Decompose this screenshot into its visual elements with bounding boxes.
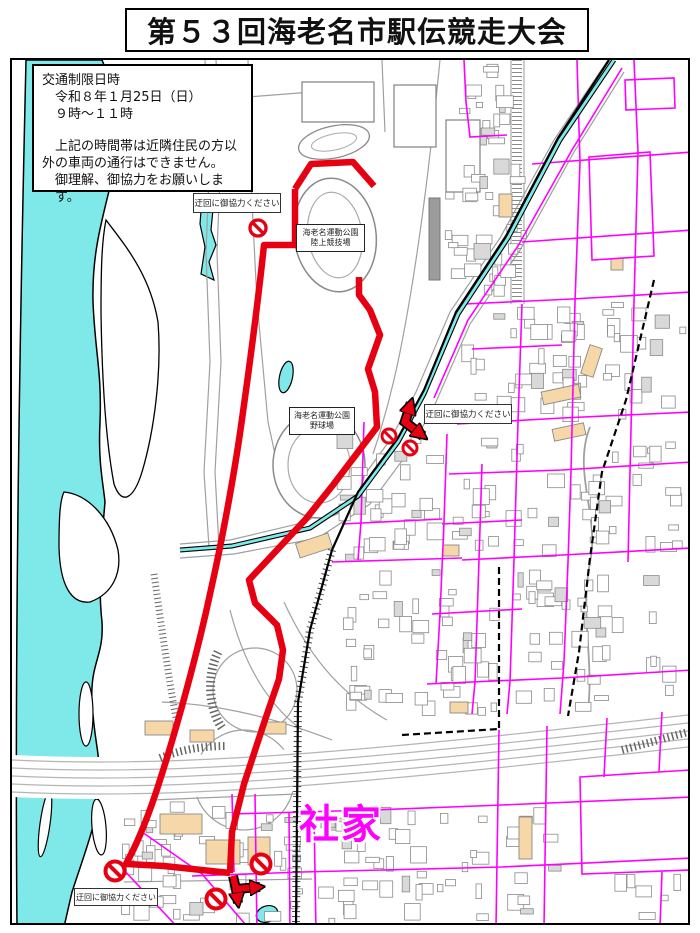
building xyxy=(442,617,452,626)
building xyxy=(464,479,469,489)
building xyxy=(608,325,615,337)
detour-label-south: 迂回に御協力ください xyxy=(74,888,158,906)
no-entry-icon xyxy=(207,890,226,909)
building xyxy=(489,537,499,547)
park-pond xyxy=(276,360,295,394)
building xyxy=(599,501,611,513)
building xyxy=(170,802,184,812)
building xyxy=(472,634,486,648)
building xyxy=(472,505,485,518)
river-island xyxy=(90,798,109,855)
no-entry-icon xyxy=(250,220,266,236)
building xyxy=(553,355,566,366)
building xyxy=(518,573,523,587)
building xyxy=(367,490,383,503)
building xyxy=(598,575,609,592)
building xyxy=(392,493,405,507)
building xyxy=(494,159,509,174)
building xyxy=(394,602,402,617)
detour-label-north: 迂回に御協力ください xyxy=(193,193,281,213)
building xyxy=(596,531,609,544)
building xyxy=(449,590,457,595)
building xyxy=(563,407,578,422)
building xyxy=(413,621,429,633)
building xyxy=(544,688,554,701)
building xyxy=(466,193,478,201)
building xyxy=(489,138,505,144)
municipal-boundary xyxy=(402,280,654,735)
building xyxy=(432,570,440,576)
building xyxy=(655,315,669,328)
building xyxy=(548,474,565,488)
building xyxy=(649,612,656,624)
building xyxy=(489,663,497,680)
notice-heading: 交通制限日時 xyxy=(42,72,245,89)
building xyxy=(529,652,541,662)
building xyxy=(446,192,454,199)
building xyxy=(386,857,393,872)
building xyxy=(515,873,527,884)
building xyxy=(454,248,467,256)
tan-building xyxy=(541,384,581,405)
building xyxy=(491,703,497,712)
building xyxy=(532,373,544,388)
building xyxy=(471,851,477,858)
building xyxy=(549,517,559,526)
building xyxy=(595,696,609,701)
building xyxy=(486,192,493,199)
building xyxy=(530,634,540,645)
building xyxy=(350,692,361,699)
building xyxy=(509,383,515,392)
building xyxy=(477,914,489,921)
building xyxy=(427,455,444,463)
building xyxy=(351,468,367,476)
building xyxy=(518,307,535,319)
stadium-stands xyxy=(429,198,440,280)
tan-building xyxy=(581,345,603,378)
building xyxy=(344,878,357,886)
building xyxy=(474,244,491,260)
building xyxy=(329,918,335,924)
building xyxy=(516,691,531,703)
building xyxy=(644,576,660,586)
building xyxy=(267,815,274,822)
building xyxy=(576,703,592,712)
building xyxy=(445,231,452,240)
building xyxy=(666,488,681,496)
building xyxy=(471,358,476,374)
building xyxy=(460,528,472,536)
building xyxy=(386,694,403,703)
building xyxy=(603,310,614,316)
river-island xyxy=(101,220,159,497)
tan-building xyxy=(450,702,468,713)
building xyxy=(366,857,380,862)
building xyxy=(351,666,357,681)
building xyxy=(549,865,562,871)
building xyxy=(453,667,466,684)
building xyxy=(571,485,580,499)
route-arrow xyxy=(405,403,423,436)
building xyxy=(551,662,562,670)
building xyxy=(319,887,334,898)
building xyxy=(378,619,389,628)
building xyxy=(451,269,466,279)
building xyxy=(666,442,676,448)
building xyxy=(633,475,641,486)
building xyxy=(184,915,200,920)
building xyxy=(494,314,505,320)
building xyxy=(365,690,372,699)
building xyxy=(529,592,535,604)
building xyxy=(639,912,655,919)
building xyxy=(476,235,492,244)
building xyxy=(275,851,282,866)
building xyxy=(413,599,419,614)
building xyxy=(478,708,486,716)
building xyxy=(400,465,410,480)
building xyxy=(338,890,354,901)
building xyxy=(602,646,610,660)
building xyxy=(669,525,679,530)
building xyxy=(494,114,500,127)
building xyxy=(615,874,627,891)
building xyxy=(613,452,619,463)
building xyxy=(344,618,354,630)
building xyxy=(380,881,393,897)
building xyxy=(261,824,272,831)
building xyxy=(661,895,668,901)
sports-park xyxy=(273,82,480,518)
stadium-label: 海老名運動公園 陸上競技場 xyxy=(296,224,365,252)
building xyxy=(163,876,176,887)
notice-time: ９時～１１時 xyxy=(42,106,245,123)
building xyxy=(584,580,593,591)
building xyxy=(672,541,682,548)
building xyxy=(416,885,422,901)
building xyxy=(174,909,180,919)
building xyxy=(528,508,537,518)
building xyxy=(446,880,456,886)
building xyxy=(371,509,381,521)
river-island xyxy=(59,492,119,602)
building xyxy=(511,329,516,338)
building xyxy=(369,538,385,551)
tan-building xyxy=(145,721,173,735)
building xyxy=(666,685,674,695)
building xyxy=(534,808,546,824)
building xyxy=(521,909,534,914)
park-building xyxy=(394,85,436,147)
building xyxy=(539,349,544,364)
building xyxy=(124,819,134,826)
building xyxy=(337,434,353,448)
detour-label-east: 迂回に御協力ください xyxy=(424,404,512,424)
building xyxy=(610,526,617,533)
no-entry-icon xyxy=(403,441,417,455)
building xyxy=(427,523,444,540)
building xyxy=(651,656,657,666)
no-entry-icon xyxy=(106,862,125,881)
building xyxy=(400,616,412,631)
building xyxy=(213,807,226,819)
building xyxy=(506,511,521,527)
building xyxy=(549,632,562,644)
flyer-page: 第５３回海老名市駅伝競走大会 xyxy=(0,0,700,933)
building xyxy=(510,177,525,184)
tan-building xyxy=(206,840,240,864)
building xyxy=(636,886,652,897)
building xyxy=(417,871,426,878)
building xyxy=(674,874,681,890)
building xyxy=(596,628,606,637)
building xyxy=(480,176,488,188)
building xyxy=(395,529,407,545)
river-island xyxy=(79,682,93,746)
building xyxy=(589,482,605,495)
no-entry-icon xyxy=(382,429,396,443)
building xyxy=(405,904,421,921)
building xyxy=(482,438,498,446)
building xyxy=(363,881,378,890)
building xyxy=(190,903,203,916)
building xyxy=(463,633,471,641)
building xyxy=(558,307,570,323)
building xyxy=(627,875,635,888)
building xyxy=(577,670,585,682)
tan-building xyxy=(552,423,586,441)
building xyxy=(411,847,427,863)
building xyxy=(598,606,612,617)
building xyxy=(412,510,421,517)
building xyxy=(642,377,652,392)
building xyxy=(142,852,152,859)
building xyxy=(396,830,410,844)
notice-para: 上記の時間帯は近隣住民の方以 xyxy=(42,138,245,155)
building xyxy=(438,884,443,891)
building xyxy=(621,335,638,352)
tan-building xyxy=(443,545,459,556)
building xyxy=(663,666,676,682)
building xyxy=(496,96,513,108)
building xyxy=(285,837,301,845)
building xyxy=(476,102,482,107)
notice-para: 外の車両の通行はできません。 xyxy=(42,155,245,172)
building xyxy=(345,851,359,863)
building xyxy=(650,340,663,356)
building xyxy=(516,374,533,385)
building xyxy=(634,446,646,457)
no-entry-icon xyxy=(252,855,271,874)
building xyxy=(237,913,250,925)
building xyxy=(479,816,488,822)
building xyxy=(513,594,520,600)
building xyxy=(614,334,619,342)
building xyxy=(612,618,623,633)
building xyxy=(466,85,481,96)
tan-building xyxy=(264,722,286,734)
building xyxy=(449,243,458,248)
building xyxy=(612,302,624,307)
building xyxy=(481,128,495,135)
building xyxy=(139,868,152,882)
building xyxy=(537,581,552,590)
building xyxy=(346,639,355,646)
tan-building xyxy=(190,730,214,742)
building xyxy=(475,393,486,400)
building xyxy=(344,905,356,919)
building xyxy=(464,648,481,663)
building xyxy=(662,396,676,408)
page-title: 第５３回海老名市駅伝競走大会 xyxy=(125,8,589,52)
building xyxy=(484,67,499,73)
building xyxy=(584,618,601,629)
area-name-shake: 社家 xyxy=(299,792,383,850)
building xyxy=(530,363,546,373)
building xyxy=(650,446,661,462)
building xyxy=(265,912,281,922)
building xyxy=(478,662,489,677)
building xyxy=(420,498,433,510)
building xyxy=(373,592,387,599)
building xyxy=(440,813,448,823)
building xyxy=(402,876,410,892)
building xyxy=(134,905,149,921)
traffic-notice-box: 交通制限日時 令和８年１月25日（日） ９時～１１時 上記の時間帯は近隣住民の方… xyxy=(32,64,253,192)
building xyxy=(408,811,415,825)
building xyxy=(412,634,424,643)
tan-building xyxy=(160,814,202,834)
building xyxy=(465,264,481,277)
building xyxy=(604,373,612,380)
building xyxy=(415,693,428,706)
building xyxy=(569,356,581,367)
building xyxy=(531,325,548,340)
baseball-label: 海老名運動公園 野球場 xyxy=(289,407,355,435)
building xyxy=(460,108,470,113)
building xyxy=(364,649,372,658)
building xyxy=(476,884,481,899)
tan-building xyxy=(499,194,512,217)
notice-date: 令和８年１月25日（日） xyxy=(42,89,245,106)
park-building xyxy=(302,82,374,122)
building xyxy=(380,571,391,585)
tan-building xyxy=(519,817,532,859)
building xyxy=(680,327,686,334)
building xyxy=(360,595,369,600)
building xyxy=(518,896,530,905)
